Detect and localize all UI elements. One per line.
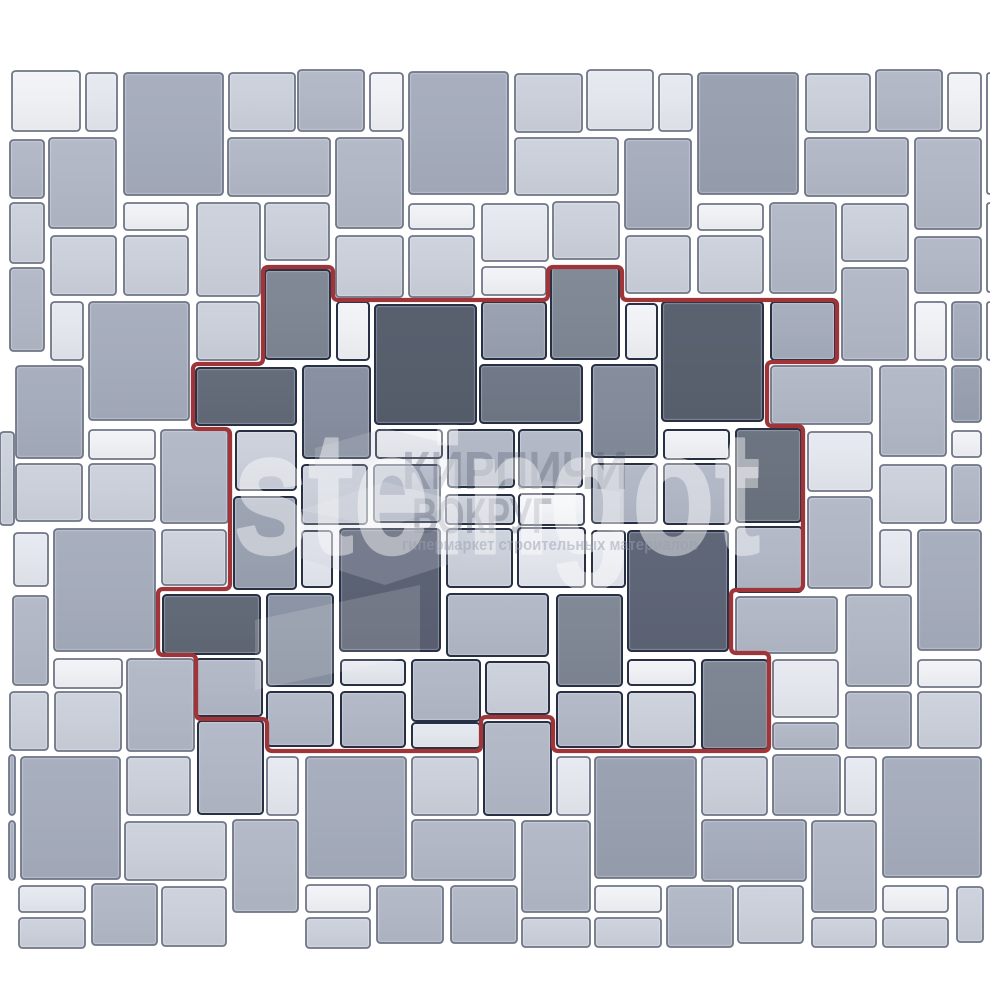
svg-text:гипермаркет строительных матер: гипермаркет строительных материалов (402, 535, 698, 554)
svg-text:steingot: steingot (233, 396, 760, 591)
